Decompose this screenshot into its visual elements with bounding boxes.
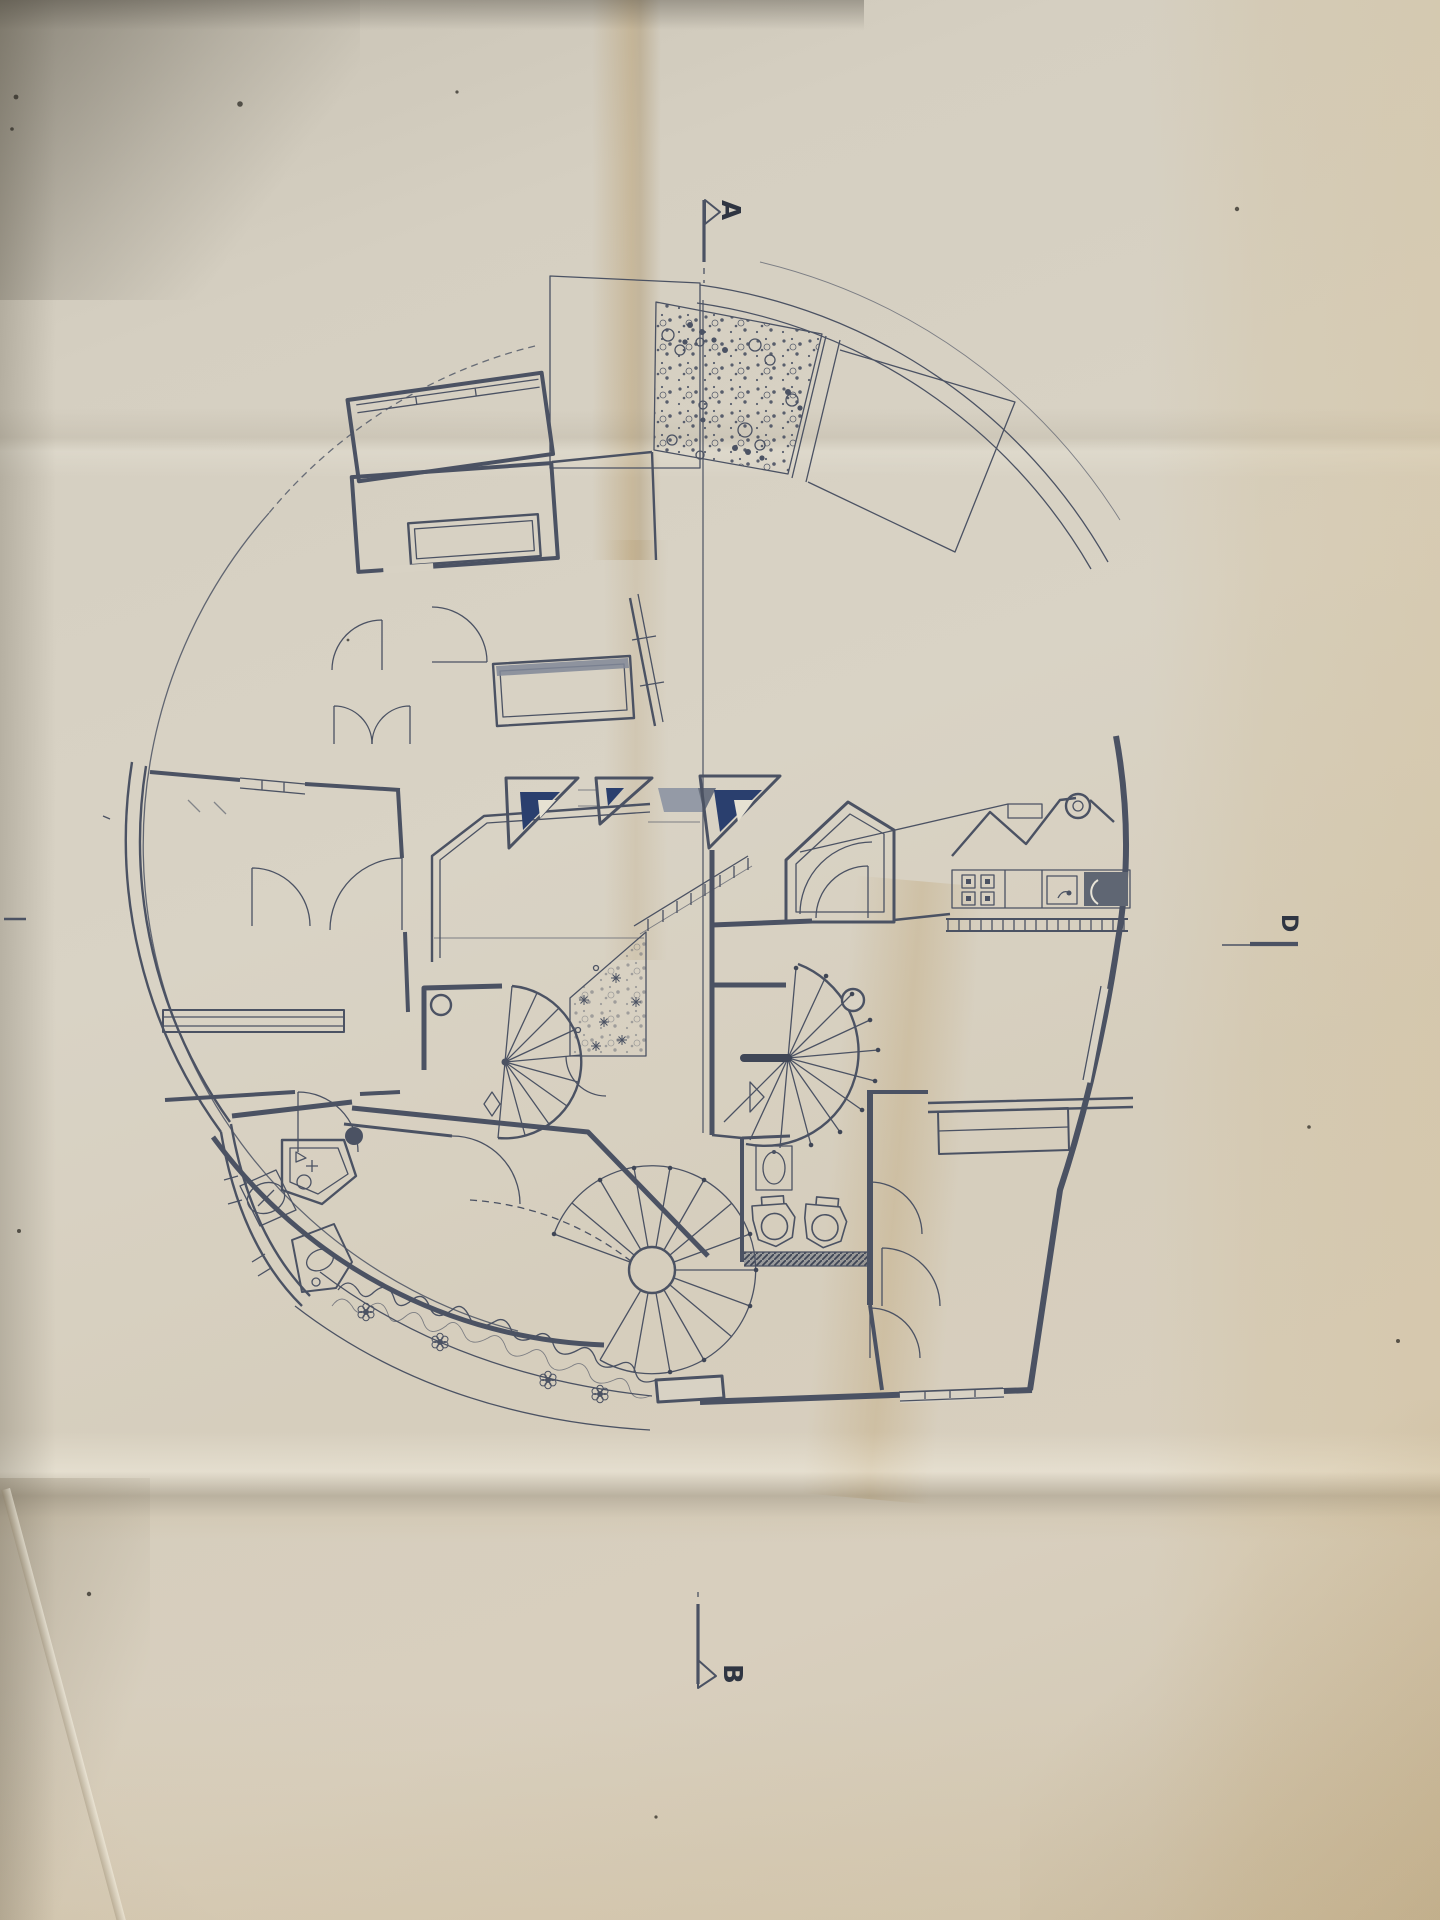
corridor-walls bbox=[344, 1108, 708, 1256]
section-label-b: B bbox=[717, 1664, 747, 1684]
pentagon-room bbox=[786, 802, 894, 922]
photographed-blueprint: A B D bbox=[0, 0, 1440, 1920]
floor-plan-drawing: A B D bbox=[0, 0, 1440, 1920]
stove-burners bbox=[962, 875, 994, 905]
bottom-entrance bbox=[656, 1376, 724, 1402]
spiral-stair-center bbox=[712, 964, 878, 1148]
section-markers: A B D bbox=[4, 200, 1301, 1688]
section-marker-d: D bbox=[1222, 914, 1301, 945]
bidet-icon bbox=[292, 1224, 352, 1292]
wc-room bbox=[742, 1136, 922, 1266]
sink-icon bbox=[1047, 876, 1077, 904]
central-hall bbox=[432, 776, 1042, 1135]
section-marker-b: B bbox=[698, 1592, 747, 1688]
terrace-garden-wedge bbox=[650, 296, 830, 481]
upper-left-rooms bbox=[332, 373, 664, 744]
winter-garden bbox=[566, 928, 650, 1096]
outer-walls bbox=[126, 262, 1126, 1402]
right-rooms bbox=[870, 1090, 1133, 1390]
column bbox=[345, 1127, 363, 1145]
spiral-stair-bottom bbox=[470, 1166, 756, 1374]
bathroom bbox=[221, 1102, 363, 1306]
section-label-a: A bbox=[715, 200, 745, 220]
planted-border bbox=[295, 1272, 656, 1430]
kitchen bbox=[946, 794, 1130, 931]
left-rooms bbox=[150, 772, 408, 1152]
section-marker-a: A bbox=[704, 200, 745, 283]
toilet-icon bbox=[751, 1195, 848, 1249]
shower-icon bbox=[282, 1140, 356, 1204]
section-label-d: D bbox=[1276, 914, 1301, 932]
